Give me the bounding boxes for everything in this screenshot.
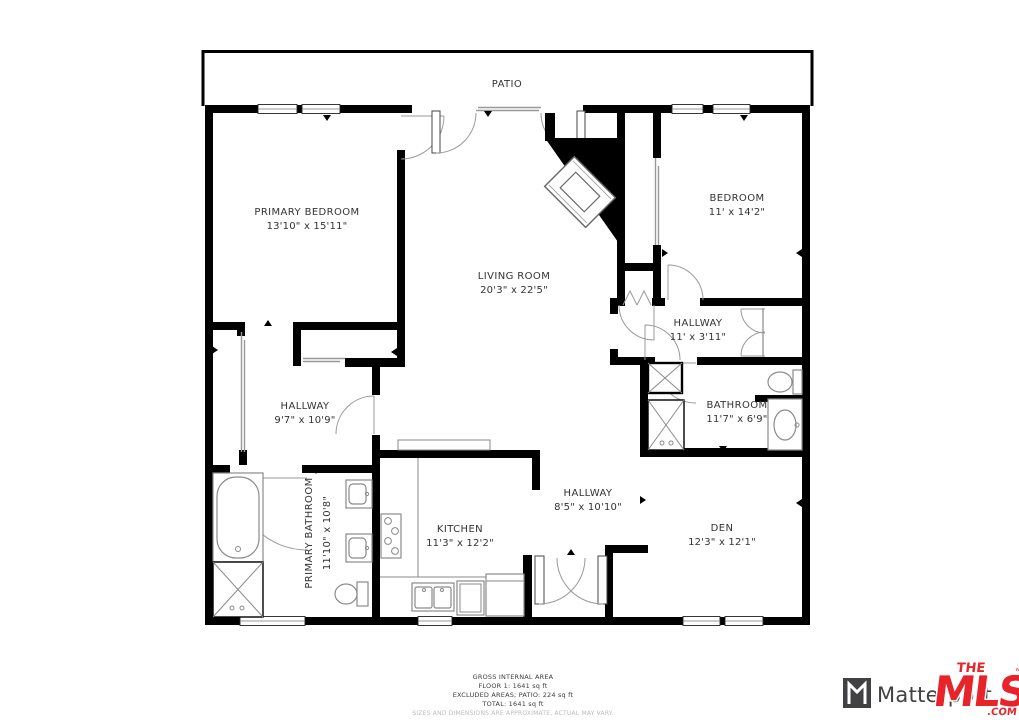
themls-logo: THE MLS ™ .COM bbox=[931, 661, 1019, 718]
room-dims-hallway-left: 9'7" x 10'9" bbox=[274, 415, 335, 426]
windows bbox=[240, 105, 763, 626]
room-dims-bathroom: 11'7" x 6'9" bbox=[706, 414, 767, 425]
dishwasher bbox=[457, 581, 484, 615]
stove bbox=[381, 514, 401, 558]
shower bbox=[648, 400, 684, 450]
themls-tm: ™ bbox=[1013, 668, 1019, 678]
sink bbox=[346, 534, 372, 562]
window bbox=[258, 105, 297, 114]
toilet bbox=[768, 370, 802, 394]
kitchen-sink bbox=[412, 583, 454, 611]
window bbox=[725, 617, 763, 626]
laundry-closet bbox=[648, 363, 682, 393]
room-dims-hallway-center: 8'5" x 10'10" bbox=[554, 502, 622, 513]
room-label-hallway-center: HALLWAY bbox=[564, 488, 613, 499]
window bbox=[302, 105, 340, 114]
toilet bbox=[335, 582, 368, 606]
floor-plan: PATIO PRIMARY BEDROOM 13'10" x 15'11" BE… bbox=[0, 0, 1019, 720]
room-dims-hallway-upper: 11' x 3'11" bbox=[670, 332, 726, 343]
sink bbox=[346, 480, 372, 508]
room-label-living-room: LIVING ROOM bbox=[478, 271, 550, 282]
interior-walls bbox=[205, 113, 810, 625]
window bbox=[240, 617, 305, 626]
room-dims-kitchen: 11'3" x 12'2" bbox=[426, 538, 494, 549]
room-label-hallway-upper: HALLWAY bbox=[674, 318, 723, 329]
room-label-bathroom: BATHROOM bbox=[706, 400, 767, 411]
room-label-kitchen: KITCHEN bbox=[437, 524, 483, 535]
footer-gross-area: GROSS INTERNAL AREA bbox=[473, 673, 554, 681]
room-label-patio: PATIO bbox=[492, 79, 522, 90]
room-dims-primary-bathroom: 11'10" x 10'8" bbox=[322, 496, 333, 570]
room-labels: PATIO PRIMARY BEDROOM 13'10" x 15'11" BE… bbox=[254, 79, 767, 589]
room-label-den: DEN bbox=[711, 523, 734, 534]
room-label-primary-bathroom: PRIMARY BATHROOM bbox=[304, 477, 315, 588]
room-dims-bedroom: 11' x 14'2" bbox=[709, 207, 765, 218]
room-label-hallway-left: HALLWAY bbox=[281, 401, 330, 412]
room-label-primary-bedroom: PRIMARY BEDROOM bbox=[254, 207, 359, 218]
footer-disclaimer: SIZES AND DIMENSIONS ARE APPROXIMATE, AC… bbox=[412, 710, 613, 717]
vanity-sink bbox=[768, 399, 802, 450]
footer-floor1: FLOOR 1: 1641 sq ft bbox=[478, 682, 547, 690]
branding: Matterport THE MLS ™ .COM bbox=[843, 661, 1019, 718]
window bbox=[683, 617, 720, 626]
bathtub bbox=[213, 473, 263, 562]
room-dims-living-room: 20'3" x 22'5" bbox=[480, 285, 548, 296]
footer-excluded: EXCLUDED AREAS; PATIO: 224 sq ft bbox=[453, 691, 574, 699]
refrigerator bbox=[486, 574, 524, 616]
room-label-bedroom: BEDROOM bbox=[710, 193, 765, 204]
footer: GROSS INTERNAL AREA FLOOR 1: 1641 sq ft … bbox=[412, 673, 613, 717]
shower bbox=[213, 562, 263, 617]
floorplan-page: PATIO PRIMARY BEDROOM 13'10" x 15'11" BE… bbox=[0, 0, 1019, 720]
window bbox=[418, 617, 452, 626]
breakfast-bar bbox=[398, 440, 490, 450]
window bbox=[713, 105, 750, 114]
room-dims-primary-bedroom: 13'10" x 15'11" bbox=[267, 221, 348, 232]
footer-total: TOTAL: 1641 sq ft bbox=[481, 700, 543, 708]
room-dims-den: 12'3" x 12'1" bbox=[688, 537, 756, 548]
themls-com: .COM bbox=[987, 707, 1018, 718]
window bbox=[672, 105, 703, 114]
primary-bathroom-fixtures bbox=[213, 473, 372, 617]
